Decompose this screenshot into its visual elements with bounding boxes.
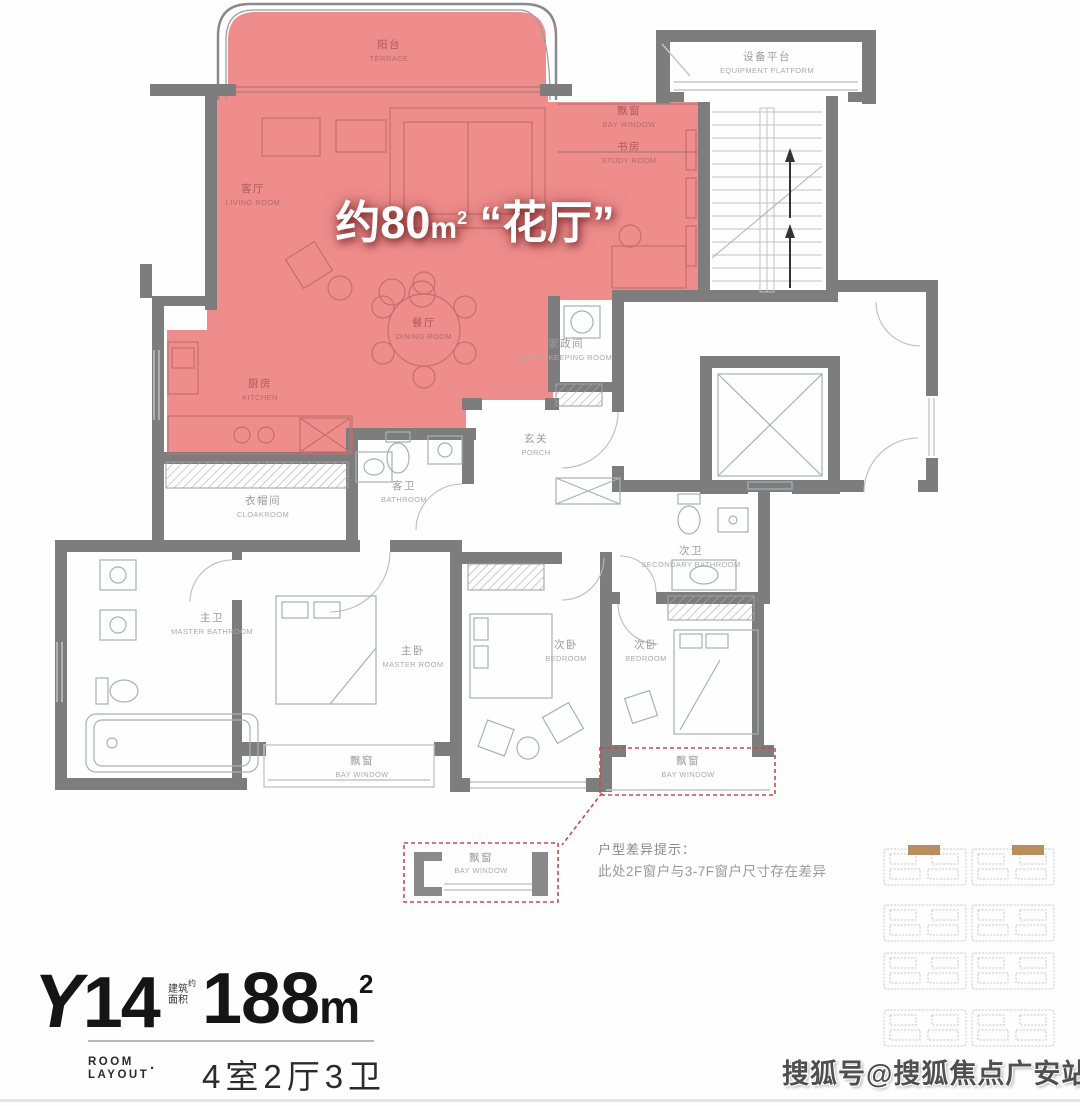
label-living-zh: 客厅 — [241, 182, 265, 195]
label-bay-top-en: BAY WINDOW — [602, 120, 656, 129]
highlight-area-text: 约80 — [335, 197, 430, 248]
area-small-line1: 建筑 — [168, 984, 188, 995]
keyplan-item — [884, 905, 966, 941]
label-porch-en: PORCH — [521, 448, 550, 457]
label-bay-detail-en: BAY WINDOW — [454, 866, 508, 875]
elevator — [718, 374, 822, 489]
label-porch-zh: 玄关 — [524, 432, 548, 445]
floor-plan: 阳台 TERRACE 飘窗 BAY WINDOW 书房 STUDY ROOM 客… — [0, 0, 1080, 1106]
area-small-label: 建筑约 面积 — [168, 978, 196, 1006]
highlight-name: “花厅” — [480, 197, 615, 248]
highlight-unit: m — [430, 212, 457, 245]
label-cloakroom-en: CLOAKROOM — [237, 510, 289, 519]
bedroom-center-closet — [468, 564, 544, 590]
label-kitchen-zh: 厨房 — [248, 377, 272, 390]
label-study-zh: 书房 — [617, 140, 641, 153]
room-layout-dot: · — [150, 1060, 155, 1077]
label-cloakroom-zh: 衣帽间 — [245, 494, 281, 507]
label-bedroom-right-en: BEDROOM — [625, 654, 667, 663]
keyplan-highlight-unit — [908, 845, 940, 855]
label-bedroom-center-zh: 次卧 — [554, 638, 578, 651]
keyplan-item — [972, 1010, 1054, 1046]
room-config: 4室2厅3卫 — [202, 1050, 386, 1098]
keyplan-item — [884, 953, 966, 989]
area-small-line2: 面积 — [168, 995, 196, 1006]
label-bay-master-zh: 飘窗 — [350, 754, 374, 767]
label-bay-right-en: BAY WINDOW — [661, 770, 715, 779]
highlight-unit-sup: 2 — [457, 208, 467, 228]
keyplan-item — [972, 905, 1054, 941]
label-dining-en: DINING ROOM — [396, 332, 452, 341]
model-number: 14 — [83, 963, 159, 1043]
label-bay-detail-zh: 飘窗 — [469, 851, 493, 864]
bottom-divider — [0, 1099, 1080, 1102]
stairs — [712, 108, 822, 292]
label-secondary-bath-zh: 次卫 — [679, 544, 703, 557]
keyplan-item — [972, 845, 1054, 885]
label-master-room-en: MASTER ROOM — [382, 660, 443, 669]
stair-up-arrow — [785, 148, 795, 288]
label-guest-bath-en: BATHROOM — [381, 495, 427, 504]
variance-note-body: 此处2F窗户与3-7F窗户尺寸存在差异 — [598, 865, 827, 879]
label-terrace-zh: 阳台 — [377, 38, 401, 51]
detail-wall-right — [532, 852, 548, 896]
label-living-en: LIVING ROOM — [226, 198, 280, 207]
label-terrace-en: TERRACE — [370, 54, 409, 63]
cloakroom-wardrobe — [166, 462, 348, 488]
detail-wall-left — [414, 852, 442, 896]
porch-shoe-cabinet — [556, 384, 602, 406]
area-value: 188m2 — [202, 958, 373, 1040]
highlight-banner: 约80m2 “花厅” — [280, 186, 670, 251]
bedroom-right-closet — [668, 596, 754, 620]
label-equipment-en: EQUIPMENT PLATFORM — [720, 66, 814, 75]
keyplan-highlight-unit — [1012, 845, 1044, 855]
label-master-bath-zh: 主卫 — [200, 612, 224, 624]
label-master-room-zh: 主卧 — [401, 644, 425, 657]
watermark: 搜狐号@搜狐焦点广安站 — [782, 1052, 1080, 1091]
label-bay-master-en: BAY WINDOW — [335, 770, 389, 779]
room-layout-line1: ROOM — [88, 1056, 149, 1069]
keyplan-thumbnails — [884, 845, 1054, 1046]
area-number: 188 — [202, 959, 319, 1039]
keyplan-item — [884, 1010, 966, 1046]
label-bay-right-zh: 飘窗 — [676, 754, 700, 767]
model-letter: Y — [26, 958, 90, 1045]
room-layout-label: ROOM LAYOUT — [88, 1056, 149, 1082]
variance-note-title: 户型差异提示： — [598, 843, 827, 856]
label-study-en: STUDY ROOM — [602, 156, 657, 165]
label-dining-zh: 餐厅 — [412, 316, 436, 329]
label-bedroom-right-zh: 次卧 — [634, 638, 658, 651]
area-unit: m — [319, 981, 359, 1033]
area-unit-sup: 2 — [359, 969, 372, 999]
area-small-approx: 约 — [188, 979, 196, 988]
label-kitchen-en: KITCHEN — [242, 393, 278, 402]
label-housekeeping-zh: 家政间 — [548, 337, 584, 350]
room-layout-line2: LAYOUT — [88, 1069, 149, 1082]
label-secondary-bath-en: SECONDARY BATHROOM — [641, 560, 740, 569]
label-bedroom-center-en: BEDROOM — [545, 654, 587, 663]
keyplan-item — [884, 845, 966, 885]
variance-note: 户型差异提示： 此处2F窗户与3-7F窗户尺寸存在差异 — [598, 843, 827, 879]
label-equipment-zh: 设备平台 — [743, 50, 791, 63]
model-code: Y14 — [34, 958, 159, 1045]
label-master-bath-en: MASTER BATHROOM — [171, 627, 253, 636]
label-bay-top-zh: 飘窗 — [617, 104, 641, 117]
keyplan-item — [972, 953, 1054, 989]
label-housekeeping-en: HOUSEKEEPING ROOM — [520, 353, 612, 362]
title-divider — [88, 1040, 374, 1042]
floorplan-page: 阳台 TERRACE 飘窗 BAY WINDOW 书房 STUDY ROOM 客… — [0, 0, 1080, 1106]
title-block: Y14 建筑约 面积 188m2 ROOM LAYOUT · 4室2厅3卫 — [34, 952, 454, 1102]
label-guest-bath-zh: 客卫 — [392, 479, 416, 492]
